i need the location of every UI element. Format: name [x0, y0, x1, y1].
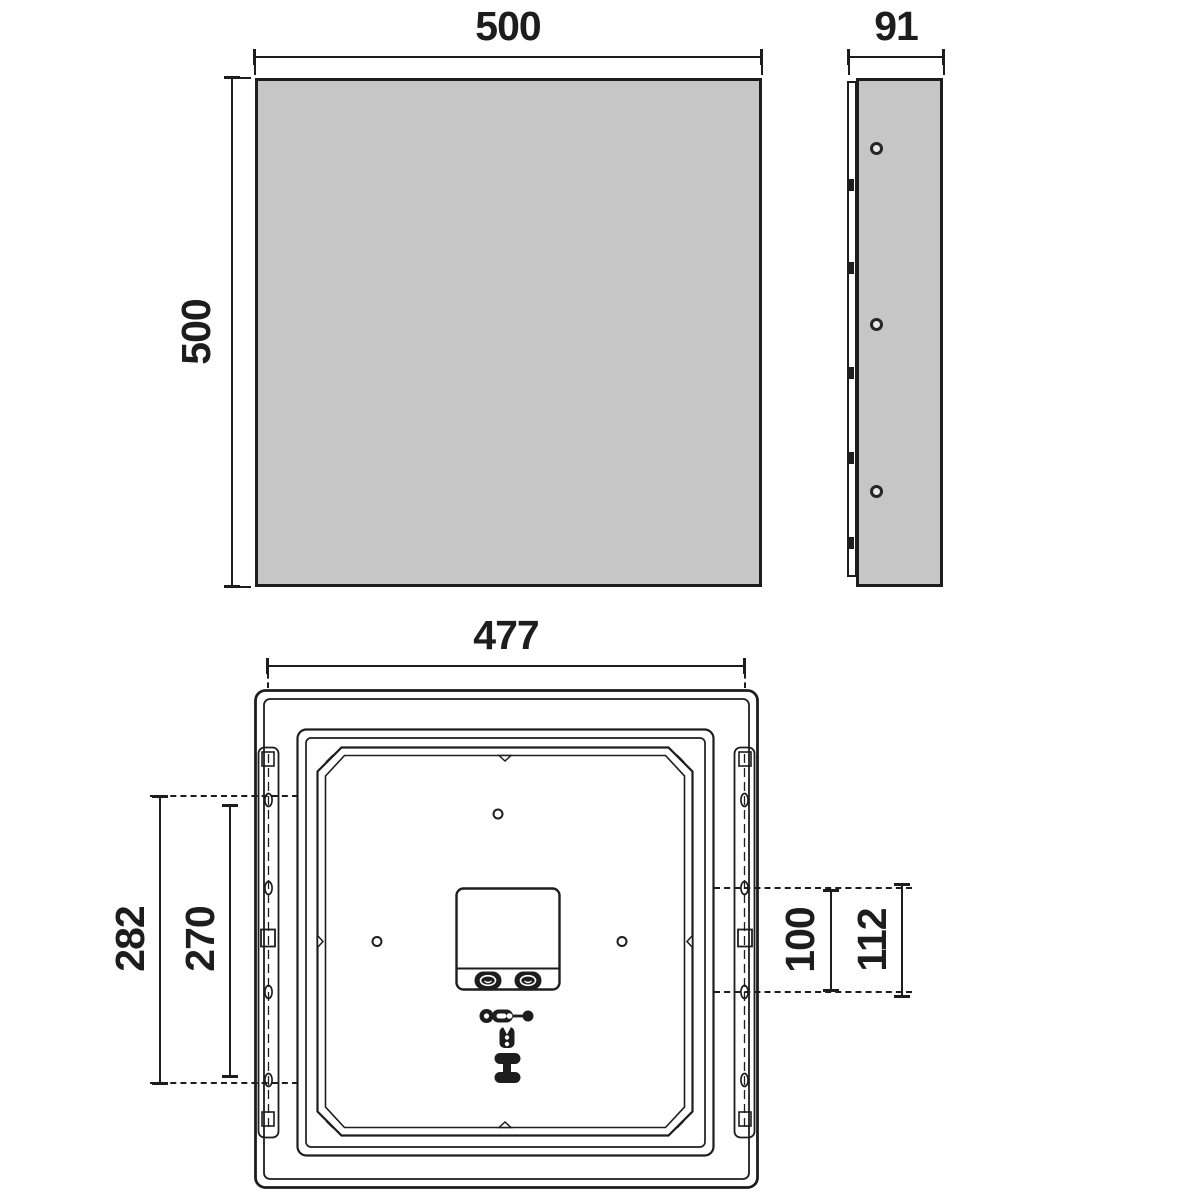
side-view-bracket-mark	[849, 452, 854, 464]
dim-270-tick-bottom	[222, 1075, 238, 1078]
connector-right	[515, 972, 542, 990]
dim-rear-width-witness-right	[744, 673, 746, 688]
dim-270-line	[229, 805, 231, 1076]
dim-side-width-line	[849, 56, 944, 58]
dim-100-label: 100	[778, 890, 822, 990]
dim-rear-width-line	[268, 665, 745, 667]
front-view-panel	[255, 78, 762, 587]
connector-left	[475, 972, 502, 990]
dim-side-width-label: 91	[846, 4, 946, 48]
dim-front-width-label: 500	[458, 4, 558, 48]
rear-hole-top	[494, 810, 503, 819]
dim-112-line	[901, 884, 903, 996]
witness-left-top	[150, 795, 298, 797]
dim-front-width-witness-right	[761, 64, 763, 75]
side-view-panel	[856, 78, 943, 587]
dim-100-tick-bottom	[823, 989, 839, 992]
dim-rear-width-tick-right	[743, 658, 746, 674]
rear-suspension-hardware	[480, 1009, 534, 1083]
dim-112-tick-top	[894, 883, 910, 886]
dim-rear-width-witness-left	[267, 673, 269, 688]
dim-rear-width-tick-left	[266, 658, 269, 674]
side-view-flange	[847, 81, 857, 577]
dim-front-width-witness-left	[254, 64, 256, 75]
rear-inner-frame-inner-line	[306, 738, 705, 1147]
side-view-hole-top	[870, 142, 883, 155]
dim-side-width-witness-left	[848, 64, 850, 75]
rear-panel-right-notch	[687, 936, 693, 948]
dim-112-tick-bottom	[894, 995, 910, 998]
dim-100-tick-top	[823, 889, 839, 892]
dim-side-width-tick-left	[847, 49, 850, 65]
dim-front-width-line	[255, 56, 762, 58]
dim-side-width-tick-right	[942, 49, 945, 65]
side-view-hole-middle	[870, 318, 883, 331]
dim-front-height-witness-bottom	[240, 586, 251, 588]
rear-left-rail	[259, 748, 279, 1138]
dim-front-height-tick-bottom	[224, 585, 240, 588]
rear-panel-top-notch	[499, 756, 511, 762]
dim-270-label: 270	[178, 889, 222, 989]
dim-front-height-tick-top	[224, 76, 240, 79]
dim-112-label: 112	[850, 890, 894, 990]
side-view-bracket-mark	[849, 262, 854, 274]
rear-driver-box	[457, 889, 560, 990]
dim-front-width-tick-left	[253, 49, 256, 65]
side-view-bracket-mark	[849, 179, 854, 191]
rear-inner-frame	[298, 730, 714, 1156]
rear-hole-left	[373, 937, 382, 946]
witness-left-bottom	[150, 1082, 298, 1084]
rear-panel-left-notch	[318, 936, 324, 948]
side-view-hole-bottom	[870, 485, 883, 498]
rear-right-rail	[735, 748, 755, 1138]
dim-front-height-witness-top	[240, 77, 251, 79]
rear-panel-bottom-notch	[499, 1122, 511, 1128]
dim-side-width-witness-right	[943, 64, 945, 75]
dim-100-line	[830, 890, 832, 990]
rear-outer-frame-inner-line	[264, 699, 749, 1179]
rear-hole-right	[618, 937, 627, 946]
dim-rear-width-label: 477	[456, 613, 556, 657]
side-view-bracket-mark	[849, 537, 854, 549]
dim-282-tick-top	[152, 795, 168, 798]
dim-front-height-label: 500	[174, 282, 218, 382]
dim-front-width-tick-right	[760, 49, 763, 65]
dim-front-height-line	[231, 78, 233, 587]
technical-drawing-canvas: 500 500 91	[0, 0, 1200, 1200]
witness-right-bottom	[714, 991, 912, 993]
dim-270-tick-top	[222, 804, 238, 807]
side-view-bracket-mark	[849, 367, 854, 379]
dim-282-line	[159, 796, 161, 1083]
dim-282-label: 282	[108, 889, 152, 989]
dim-282-tick-bottom	[152, 1082, 168, 1085]
witness-right-top	[714, 887, 912, 889]
